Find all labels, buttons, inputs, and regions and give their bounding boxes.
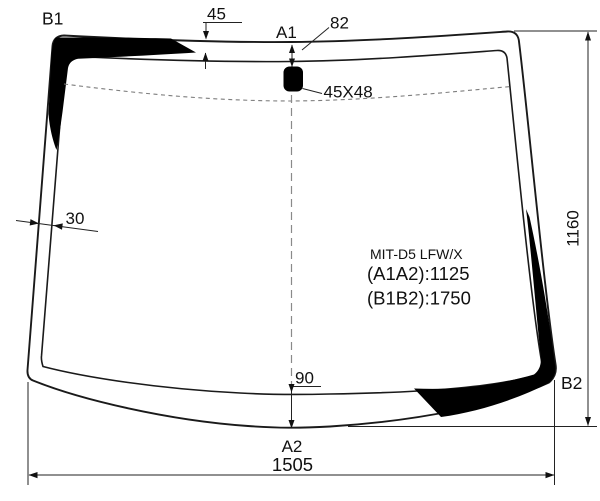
callout-mount-size: 45X48 <box>303 83 373 102</box>
dim-30-label: 30 <box>66 209 85 228</box>
arrow-right-icon <box>546 472 555 478</box>
windshield-diagram: 45 A1 82 45X48 30 1160 90 A2 <box>0 0 600 501</box>
arrow-left-icon <box>54 223 63 229</box>
part-b1b2-length: (B1B2):1750 <box>367 288 471 309</box>
dim-bottom-center: 90 A2 <box>282 369 321 457</box>
arrow-down-icon <box>289 384 295 393</box>
dim-edge-band-width: 30 <box>16 209 98 232</box>
arrow-down-icon <box>203 31 209 40</box>
arrow-left-icon <box>29 472 38 478</box>
part-code: MIT-D5 LFW/X <box>370 246 463 262</box>
arrow-right-icon <box>30 219 39 225</box>
part-a1a2-length: (A1A2):1125 <box>367 263 470 284</box>
part-info: MIT-D5 LFW/X (A1A2):1125 (B1B2):1750 <box>367 246 471 309</box>
mirror-mount <box>284 67 304 92</box>
arrow-down-icon <box>585 417 591 426</box>
b1-label: B1 <box>42 9 63 29</box>
dim-82-label: 82 <box>330 14 349 33</box>
arrow-up-icon <box>289 45 295 54</box>
a1-label: A1 <box>276 23 297 42</box>
diagram-svg: 45 A1 82 45X48 30 1160 90 A2 <box>0 0 600 501</box>
dim-1505-label: 1505 <box>272 454 313 475</box>
arrow-up-icon <box>203 53 209 62</box>
mount-size-label: 45X48 <box>324 83 373 102</box>
arrow-down-icon <box>289 59 295 68</box>
b2-label: B2 <box>561 373 582 393</box>
dim-45-label: 45 <box>207 5 226 24</box>
dim-1160-label: 1160 <box>564 210 583 247</box>
frit-band-top-left <box>49 37 197 150</box>
arrow-up-icon <box>585 32 591 41</box>
dim-90-label: 90 <box>295 369 314 388</box>
dim-glass-height: 1160 <box>348 31 597 427</box>
dim-top-band-depth: 45 <box>203 5 243 70</box>
